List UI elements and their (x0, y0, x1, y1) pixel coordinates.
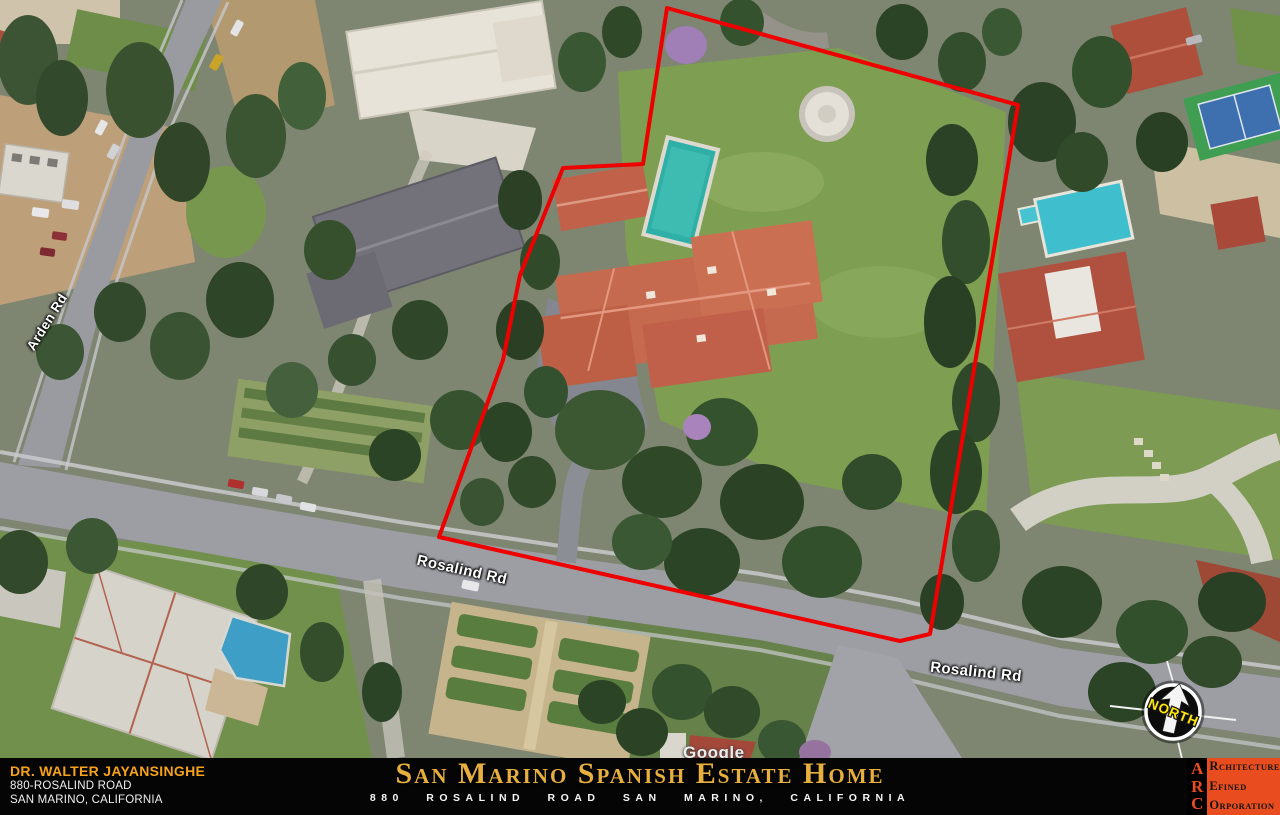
arc-word: EFINED (1209, 777, 1280, 797)
flyer-title: San Marino Spanish Estate Home (0, 758, 1280, 790)
google-watermark: Google (683, 743, 745, 758)
arc-logo: ARC RCHITECTUREEFINEDORPORATION (1187, 758, 1280, 815)
aerial-map: Rosalind Rd Rosalind Rd Arden Rd Google … (0, 0, 1280, 758)
arc-word: RCHITECTURE (1209, 757, 1280, 777)
estate-gazebo (799, 86, 855, 142)
north-compass: NORTH (1108, 656, 1238, 758)
arc-word: ORPORATION (1209, 796, 1280, 815)
pool-pavilion (1210, 196, 1265, 250)
real-estate-flyer: Rosalind Rd Rosalind Rd Arden Rd Google … (0, 0, 1280, 815)
neighbor-house-right (998, 251, 1145, 382)
arc-initial-letter: C (1191, 795, 1203, 813)
arc-initial-letter: R (1191, 778, 1203, 796)
flyer-subtitle: 880 ROSALIND ROAD SAN MARINO, CALIFORNIA (0, 791, 1280, 806)
arc-logo-words: RCHITECTUREEFINEDORPORATION (1207, 758, 1280, 815)
footer-bar: DR. WALTER JAYANSINGHE 880-ROSALIND ROAD… (0, 758, 1280, 815)
aerial-photo (0, 0, 1280, 758)
arc-logo-initials: ARC (1187, 758, 1207, 815)
arc-initial-letter: A (1191, 760, 1203, 778)
title-block: San Marino Spanish Estate Home 880 ROSAL… (0, 758, 1280, 806)
